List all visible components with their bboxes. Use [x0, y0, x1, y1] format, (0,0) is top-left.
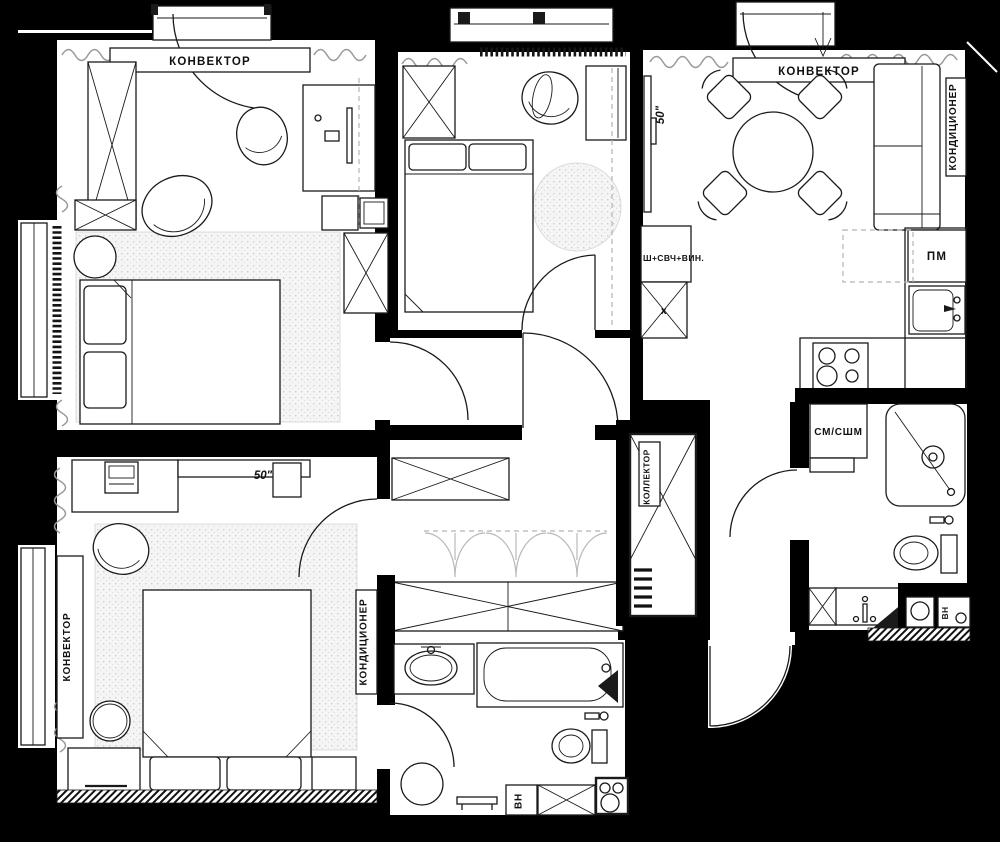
wall-hatch	[868, 628, 970, 641]
convector-label: КОНВЕКТОР	[169, 56, 251, 68]
laundry-basket	[401, 763, 443, 805]
tv-size-label: 50"	[254, 470, 273, 482]
wall-hatch	[57, 790, 377, 803]
dishwasher-label: ПМ	[927, 251, 947, 263]
tall-cabinet-label: Ш+СВЧ+ВИН.	[643, 253, 704, 263]
tv-size-label: 50"	[655, 105, 667, 124]
water-heater-label: ВН	[940, 606, 950, 619]
wall-segment	[377, 575, 395, 705]
monitor	[347, 108, 352, 163]
convector-label: КОНВЕКТОР	[62, 613, 73, 682]
air-conditioner-label: КОНДИЦИОНЕР	[359, 598, 370, 685]
nightstand	[322, 196, 358, 230]
wall-segment	[795, 388, 970, 404]
pillow	[469, 144, 526, 170]
pillow	[84, 286, 126, 344]
toilet-tank	[592, 730, 607, 763]
window-frame	[450, 8, 613, 42]
kitchen-sink	[909, 286, 965, 334]
cabinet-mark-label: х	[661, 306, 667, 317]
pillow	[227, 757, 301, 790]
toilet	[552, 729, 590, 763]
bench	[457, 797, 497, 804]
pillow	[150, 757, 220, 790]
keyboard	[325, 131, 339, 141]
toilet	[894, 536, 938, 570]
bed	[143, 590, 311, 757]
washer-unit	[596, 778, 628, 814]
round-rug	[533, 163, 621, 251]
sofa	[874, 64, 940, 230]
tv-panel	[644, 76, 651, 212]
sink	[405, 651, 457, 685]
nightstand	[312, 757, 356, 790]
water-heater-label: ВН	[514, 793, 525, 809]
balcony-door-frame	[736, 2, 835, 46]
pouf	[74, 236, 116, 278]
tv	[273, 463, 301, 497]
desk	[586, 66, 626, 140]
pillow	[409, 144, 466, 170]
dining-table	[733, 112, 813, 192]
floor-plan-drawing: КОНВЕКТОР	[0, 0, 1000, 842]
side-table	[90, 701, 130, 741]
washer-dryer-label: СМ/СШМ	[814, 427, 863, 438]
pillow	[84, 352, 126, 408]
floor-plan: КОНВЕКТОР	[0, 0, 1000, 842]
air-conditioner-label: КОНДИЦИОНЕР	[948, 83, 959, 170]
printer	[105, 462, 138, 493]
balcony-door-frame	[153, 6, 271, 40]
toilet-tank	[941, 535, 957, 573]
collector-label: КОЛЛЕКТОР	[642, 449, 652, 504]
